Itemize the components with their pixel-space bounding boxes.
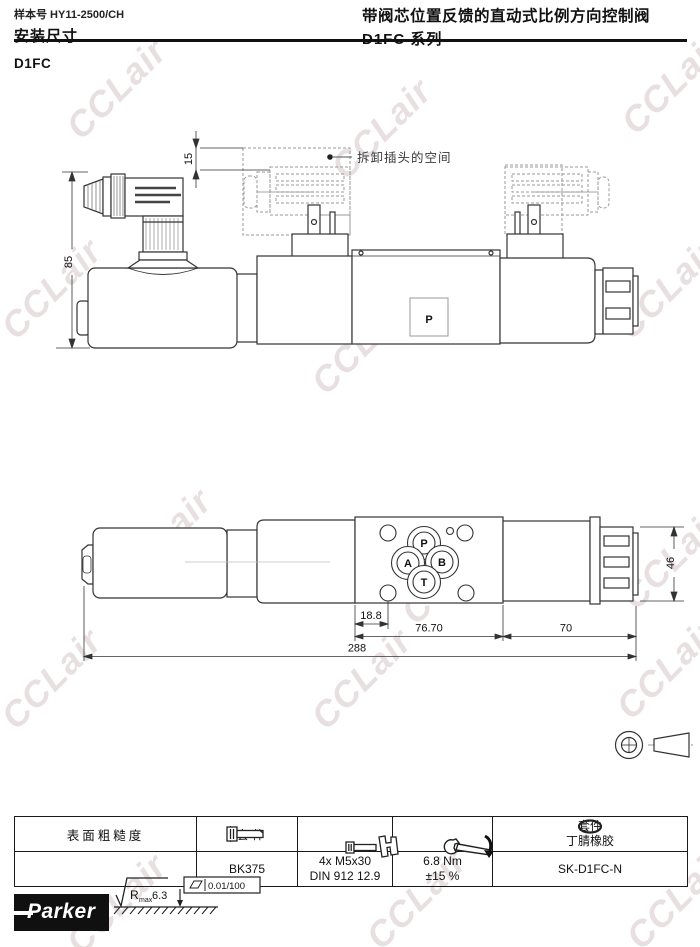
nut-flange (590, 517, 600, 604)
header-rule (14, 39, 687, 42)
callout-dot (327, 154, 333, 160)
right-body (500, 258, 595, 343)
dim-76.70-label: 76.70 (415, 623, 443, 635)
page-title: 安装尺寸 (14, 25, 124, 46)
doc-number: 样本号 HY11-2500/CH (14, 6, 124, 22)
parker-logo: Parker (14, 894, 109, 931)
port-a-label: A (404, 558, 412, 570)
svg-text:R: R (130, 888, 139, 902)
solenoid-tube (93, 528, 227, 598)
plug-detail-drawing (595, 715, 695, 787)
plug-detail-geometry (616, 732, 695, 759)
dim-288-label: 288 (348, 643, 366, 655)
bolt-caliper-icon (345, 834, 401, 860)
header-torque (393, 817, 493, 852)
valve-side-geometry (77, 148, 638, 348)
header-bolt-kit: 套 件 (197, 817, 298, 852)
dim-18.8-label: 18.8 (360, 610, 381, 622)
svg-text:6.3: 6.3 (152, 890, 167, 902)
table-header-row: 表面粗糙度 套 件 (15, 817, 688, 852)
callout-text: 拆卸插头的空间 (357, 150, 452, 165)
header-seal-kit: 套件 丁腈橡胶 (493, 817, 688, 852)
logo-text: Parker (27, 900, 95, 924)
svg-text:0.01/100: 0.01/100 (208, 881, 245, 892)
dim-70-label: 70 (560, 623, 572, 635)
dim-15 (193, 131, 270, 188)
header-bolt-caliper (298, 817, 393, 852)
dim-46-label: 46 (665, 557, 677, 569)
valve-bottom-geometry (82, 517, 638, 604)
catalog-page: CCLairCCLairCCLairCCLairCCLairCCLairCCLa… (0, 0, 700, 947)
side-view-port-label: P (425, 314, 432, 326)
torque-wrench-icon (443, 834, 505, 861)
manual-override-nut (600, 527, 638, 601)
bolt-icon (226, 825, 268, 843)
drawing-bottom-view: P A B T (60, 495, 700, 680)
dim-15-label: 15 (183, 153, 195, 165)
dim-85-label: 85 (63, 256, 75, 268)
port-t-label: T (421, 577, 428, 589)
manual-override-nut (595, 268, 638, 334)
port-b-label: B (438, 557, 446, 569)
product-title: 带阀芯位置反馈的直动式比例方向控制阀 (362, 4, 688, 26)
svg-text:max: max (139, 897, 153, 904)
right-body (503, 521, 590, 601)
drawing-side-view: P 85 15 拆卸插头的空间 (30, 120, 690, 365)
header-right: 带阀芯位置反馈的直动式比例方向控制阀 D1FC 系列 (362, 4, 688, 49)
left-body (257, 520, 355, 603)
o-ring-icon (577, 819, 603, 834)
tube-boss (128, 260, 198, 268)
cell-surface-roughness: R max 6.3 0.01/100 (15, 852, 197, 887)
section-label: D1FC (14, 56, 51, 71)
port-p-label: P (420, 538, 427, 550)
spec-table: 表面粗糙度 套 件 (14, 816, 688, 887)
connector-plug (84, 174, 187, 260)
solenoid-tube-left (88, 268, 237, 348)
header-surface-roughness: 表面粗糙度 (15, 817, 197, 852)
surface-roughness-symbol: R max 6.3 0.01/100 (106, 869, 271, 915)
yoke-plate (257, 256, 352, 344)
collar (227, 530, 257, 597)
cell-seal-kit-value: SK-D1FC-N (493, 852, 688, 887)
